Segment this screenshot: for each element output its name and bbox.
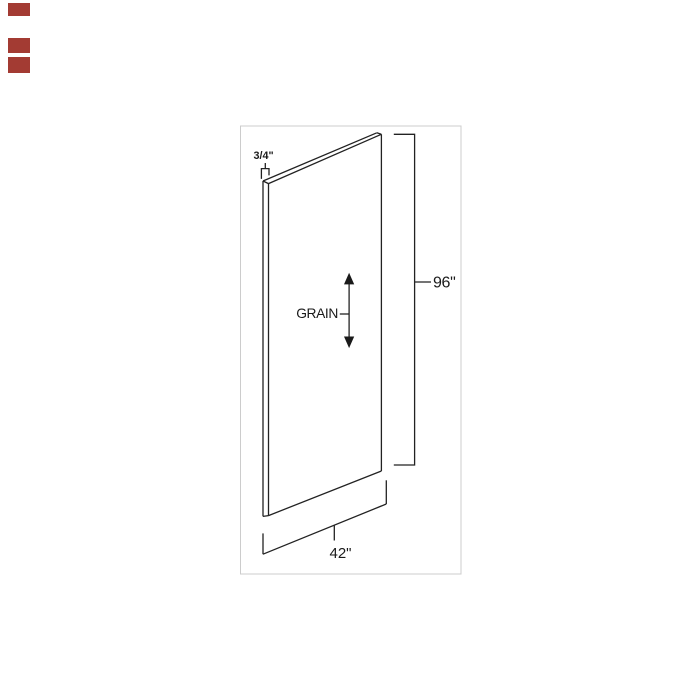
svg-text:42": 42": [330, 545, 352, 562]
svg-text:3/4": 3/4": [254, 150, 274, 162]
svg-text:GRAIN: GRAIN: [296, 306, 338, 321]
svg-text:96": 96": [433, 275, 455, 292]
